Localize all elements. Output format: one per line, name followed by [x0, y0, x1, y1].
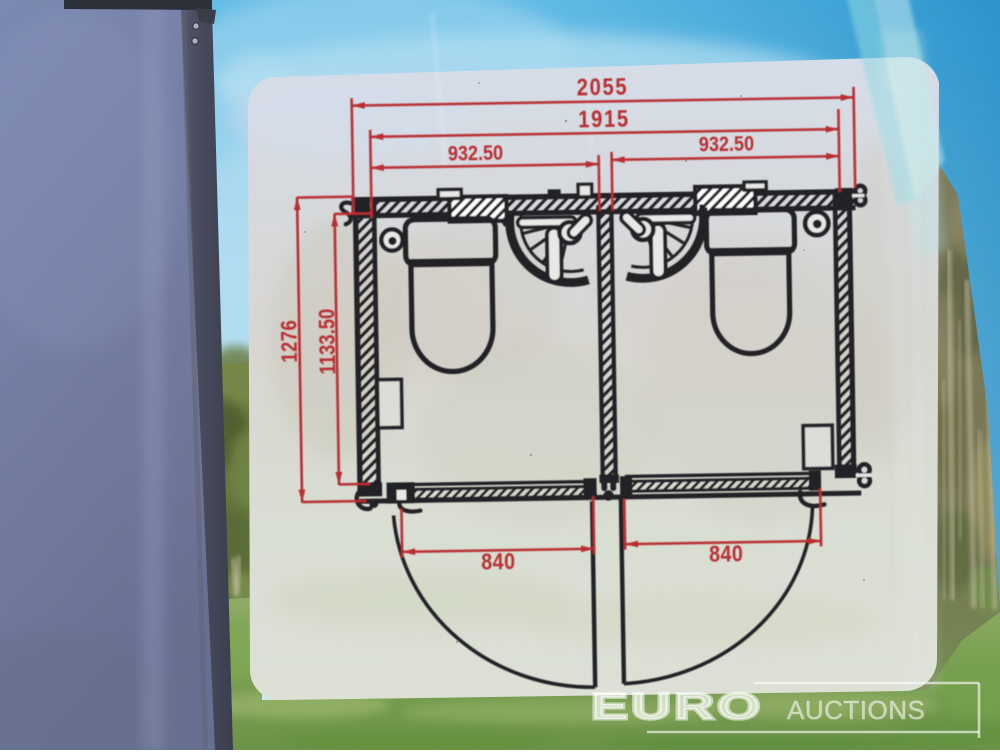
svg-text:1133.50: 1133.50	[316, 309, 341, 375]
svg-text:840: 840	[709, 540, 744, 568]
svg-text:1915: 1915	[578, 105, 630, 133]
svg-text:2055: 2055	[576, 73, 628, 101]
svg-text:932.50: 932.50	[448, 141, 504, 166]
svg-text:840: 840	[481, 547, 516, 575]
svg-text:1276: 1276	[278, 320, 303, 363]
svg-text:EURO: EURO	[591, 685, 763, 727]
svg-text:AUCTIONS: AUCTIONS	[787, 695, 925, 725]
svg-text:932.50: 932.50	[699, 132, 755, 157]
